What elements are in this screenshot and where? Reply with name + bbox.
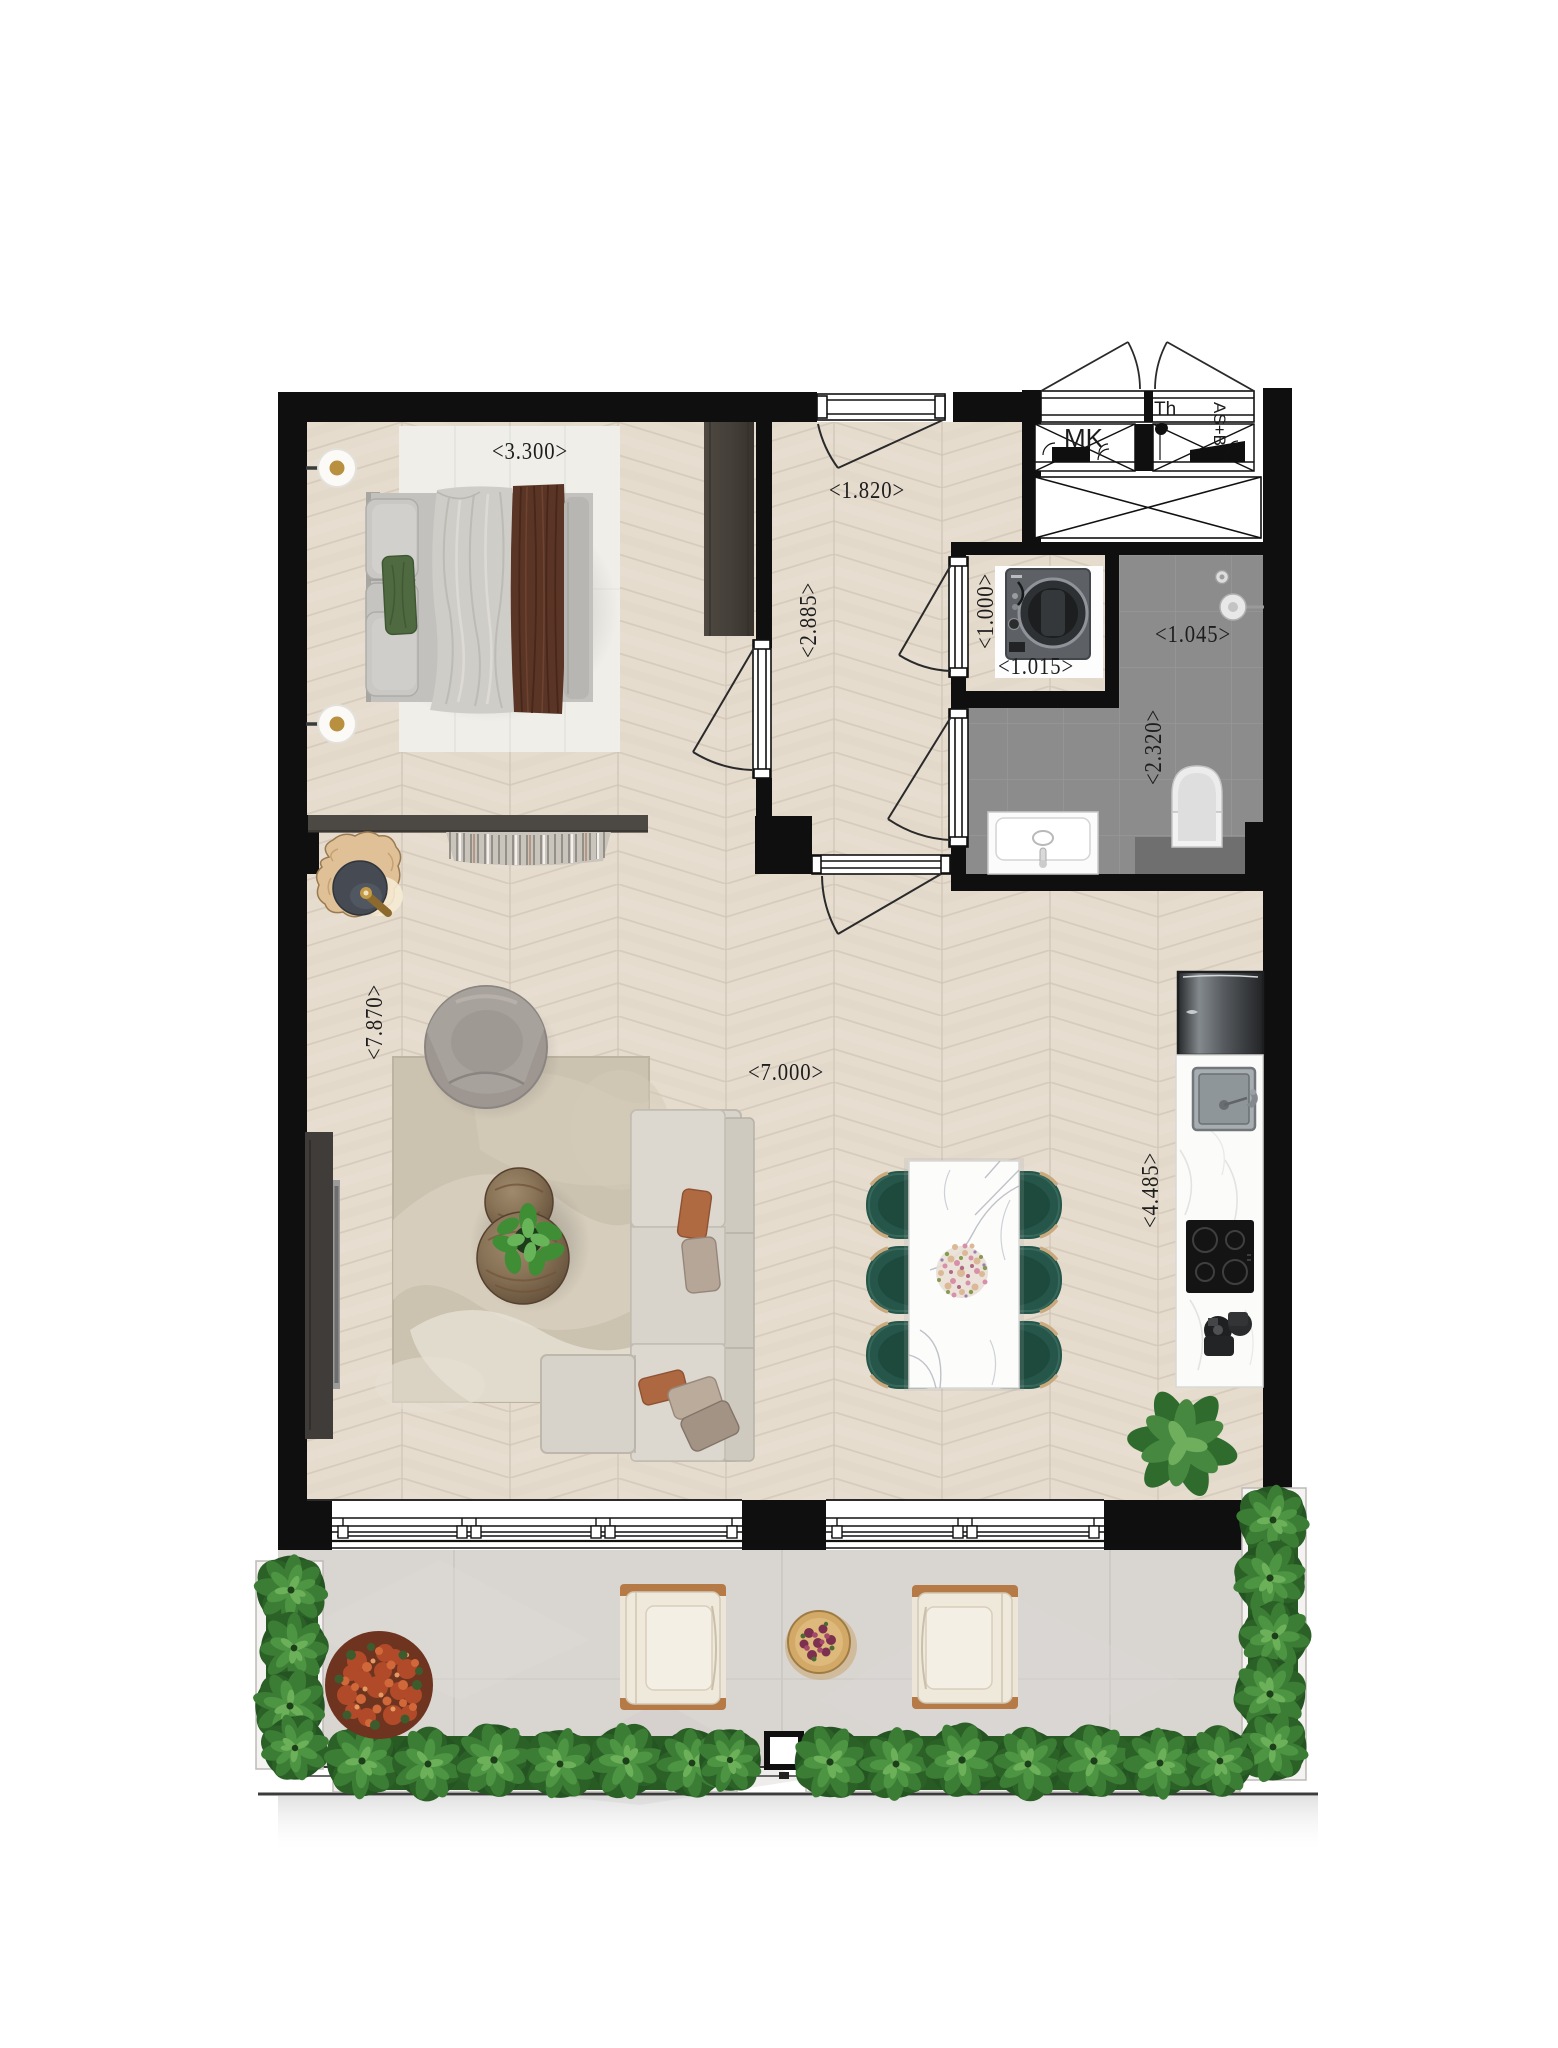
svg-text:<3.300>: <3.300> [492, 439, 568, 465]
svg-text:AS+B: AS+B [1210, 402, 1229, 446]
svg-text:<2.320>: <2.320> [1141, 709, 1167, 785]
svg-text:<1.000>: <1.000> [973, 573, 999, 649]
svg-text:Th: Th [1154, 399, 1176, 420]
svg-text:<7.870>: <7.870> [362, 984, 388, 1060]
svg-text:<4.485>: <4.485> [1138, 1152, 1164, 1228]
svg-text:<1.015>: <1.015> [998, 654, 1074, 680]
svg-text:<7.000>: <7.000> [748, 1060, 824, 1086]
svg-text:MK: MK [1064, 423, 1104, 453]
svg-text:<1.045>: <1.045> [1155, 622, 1231, 648]
svg-text:<1.820>: <1.820> [829, 478, 905, 504]
svg-text:<2.885>: <2.885> [796, 582, 822, 658]
